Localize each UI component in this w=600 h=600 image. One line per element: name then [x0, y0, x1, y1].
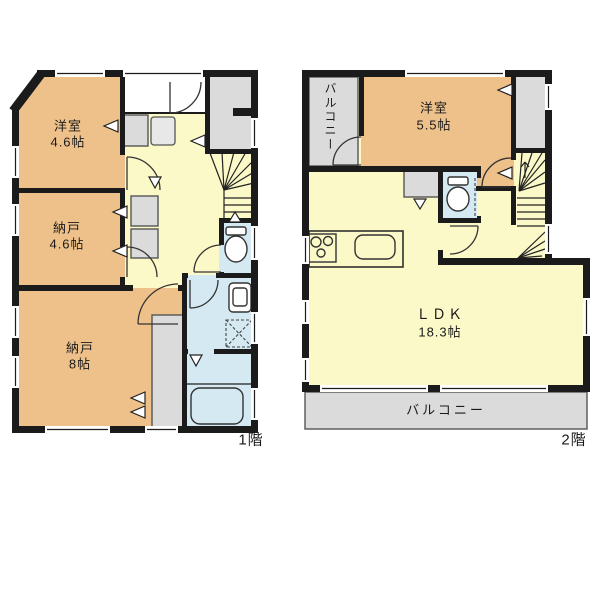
toilet-icon-1f: [225, 227, 247, 262]
room-size-nando-large-1f: 8帖: [69, 358, 91, 371]
closet-nando-1f: [152, 315, 183, 427]
floor-label-2f: 2階: [561, 433, 586, 448]
balcony-top-label: バルコニー: [322, 82, 339, 166]
shoe-cabinet-icon: [151, 117, 175, 145]
room-label-nando-large-1f: 納戸: [66, 342, 94, 355]
entry-closet: [123, 115, 148, 146]
balcony-bottom-label: バルコニー: [406, 404, 486, 417]
room-label-ldk: ＬＤＫ: [416, 307, 464, 321]
room-label-nando-small-1f: 納戸: [53, 222, 81, 235]
sink-icon-1f: [229, 283, 251, 312]
room-label-youshitsu-1f: 洋室: [54, 120, 82, 133]
closet-a-1f: [131, 196, 158, 226]
closet-tr-2f: [516, 77, 545, 148]
floor-plan: 洋室 4.6帖 納戸 4.6帖 納戸 8帖 1階 洋室 5.5帖 ＬＤＫ 18.…: [0, 0, 600, 600]
room-size-youshitsu-2f: 5.5帖: [416, 119, 451, 132]
room-size-nando-small-1f: 4.6帖: [49, 238, 84, 251]
floor-label-1f: 1階: [238, 433, 263, 448]
entrance-1f: [120, 77, 206, 113]
floorplan-canvas: [0, 0, 600, 600]
room-label-youshitsu-2f: 洋室: [420, 102, 448, 115]
floor1-plan: [12, 70, 258, 433]
room-size-ldk: 18.3帖: [418, 326, 461, 339]
closet-b-1f: [131, 229, 158, 258]
room-size-youshitsu-1f: 4.6帖: [50, 136, 85, 149]
